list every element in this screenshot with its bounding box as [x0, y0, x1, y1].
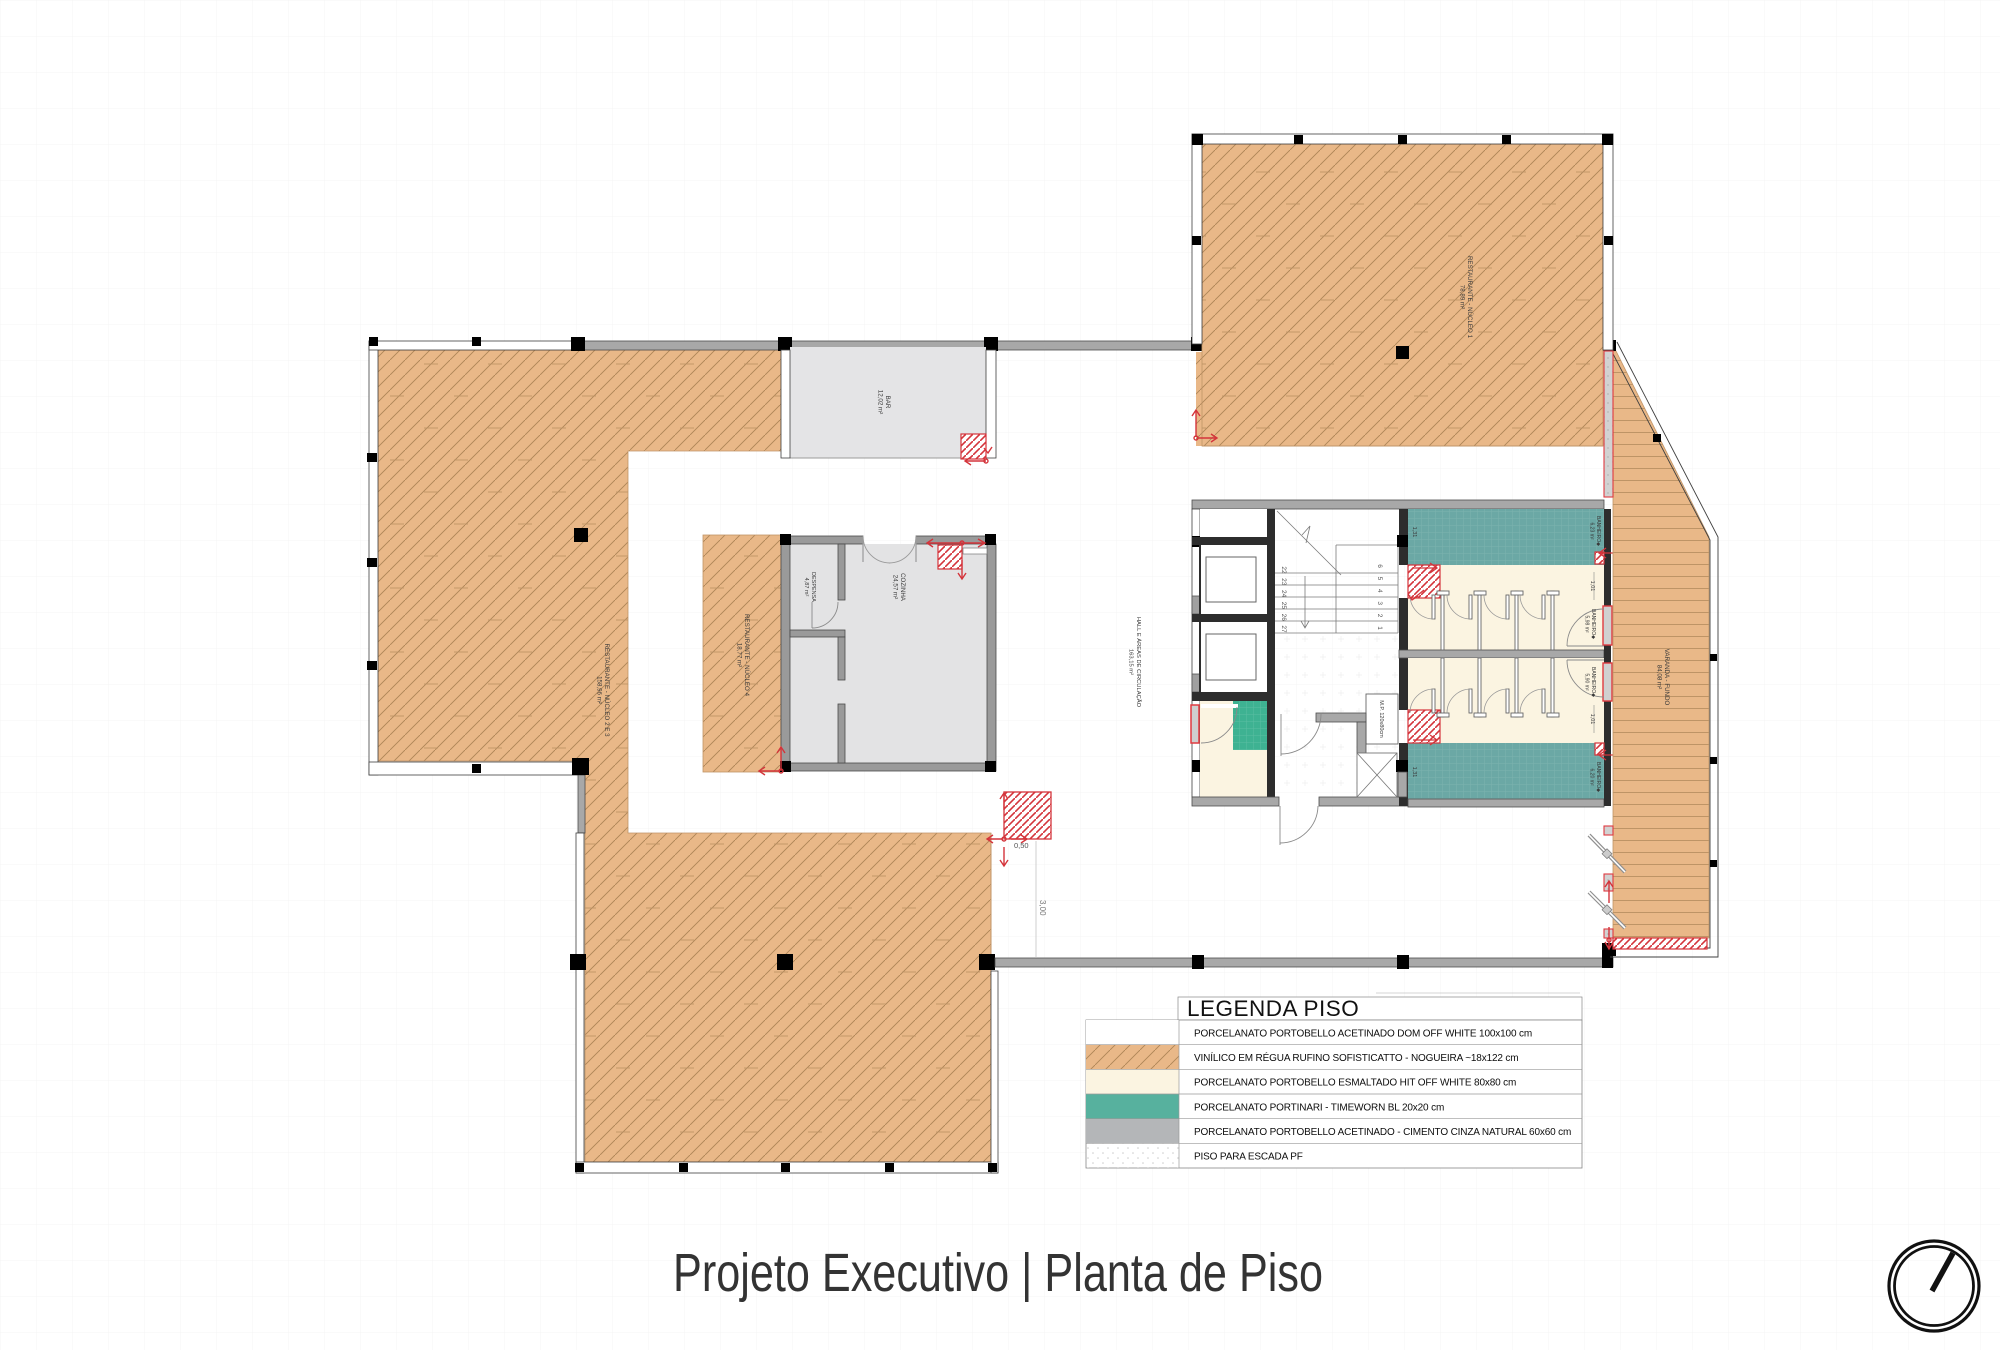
svg-text:BANHEIRO◆: BANHEIRO◆ [1590, 667, 1596, 697]
svg-text:5,90 m²: 5,90 m² [1584, 674, 1590, 691]
svg-text:BANHEIRO◆: BANHEIRO◆ [1595, 516, 1601, 546]
svg-text:COZINHA: COZINHA [899, 573, 906, 602]
svg-text:M.P. 120x80cm: M.P. 120x80cm [1378, 700, 1384, 738]
svg-text:BAR: BAR [884, 396, 891, 409]
svg-text:1: 1 [1376, 626, 1383, 630]
svg-text:1,31: 1,31 [1411, 767, 1417, 778]
svg-text:78,89 m²: 78,89 m² [1458, 285, 1465, 309]
svg-text:5: 5 [1376, 577, 1383, 581]
svg-text:PORCELANATO PORTINARI - TIMEWO: PORCELANATO PORTINARI - TIMEWORN BL 20x2… [1194, 1102, 1444, 1113]
svg-text:18,77 m²: 18,77 m² [735, 643, 742, 667]
svg-text:27: 27 [1280, 625, 1287, 633]
svg-text:PISO PARA ESCADA PF: PISO PARA ESCADA PF [1194, 1152, 1303, 1163]
svg-text:23: 23 [1280, 578, 1287, 586]
svg-text:3: 3 [1376, 601, 1383, 605]
svg-text:RESTAURANTE - NÚCLEO 2 E 3: RESTAURANTE - NÚCLEO 2 E 3 [603, 643, 610, 737]
svg-text:LEGENDA PISO: LEGENDA PISO [1187, 996, 1359, 1021]
svg-text:5,98 m²: 5,98 m² [1584, 616, 1590, 633]
svg-text:26: 26 [1280, 614, 1287, 622]
svg-text:4: 4 [1376, 589, 1383, 593]
svg-text:12,02 m²: 12,02 m² [876, 390, 883, 414]
svg-text:PORCELANATO PORTOBELLO ACETINA: PORCELANATO PORTOBELLO ACETINADO - CIMEN… [1194, 1127, 1571, 1138]
svg-text:24: 24 [1280, 590, 1287, 598]
svg-text:2: 2 [1376, 614, 1383, 618]
svg-text:BANHEIRO◆: BANHEIRO◆ [1590, 609, 1596, 639]
svg-text:1,31: 1,31 [1411, 527, 1417, 538]
svg-text:VINÍLICO EM RÉGUA RUFINO SOFIS: VINÍLICO EM RÉGUA RUFINO SOFISTICATTO - … [1194, 1051, 1518, 1064]
svg-text:24,57 m²: 24,57 m² [891, 575, 898, 599]
svg-text:163,15 m²: 163,15 m² [1128, 649, 1134, 675]
svg-text:84,08 m²: 84,08 m² [1655, 665, 1662, 689]
svg-text:RESTAURANTE - NÚCLEO 4: RESTAURANTE - NÚCLEO 4 [743, 614, 750, 697]
svg-text:Projeto Executivo | Planta de: Projeto Executivo | Planta de Piso [673, 1243, 1323, 1303]
svg-text:PORCELANATO PORTOBELLO ESMALTA: PORCELANATO PORTOBELLO ESMALTADO HIT OFF… [1194, 1078, 1516, 1089]
svg-text:25: 25 [1280, 602, 1287, 610]
svg-text:6,20 m²: 6,20 m² [1589, 769, 1595, 786]
svg-text:22: 22 [1280, 566, 1287, 574]
svg-text:0,50: 0,50 [1014, 841, 1029, 850]
svg-text:DESPENSA: DESPENSA [810, 572, 816, 602]
svg-text:HALL E ÁREAS DE CIRCULAÇÃO: HALL E ÁREAS DE CIRCULAÇÃO [1135, 617, 1142, 708]
svg-text:VARANDA - FUNDO: VARANDA - FUNDO [1663, 649, 1670, 706]
svg-text:3,00: 3,00 [1038, 900, 1047, 916]
svg-text:158,96 m²: 158,96 m² [595, 676, 602, 704]
svg-text:PORCELANATO PORTOBELLO ACETINA: PORCELANATO PORTOBELLO ACETINADO DOM OFF… [1194, 1028, 1532, 1039]
svg-text:RESTAURANTE - NÚCLEO 1: RESTAURANTE - NÚCLEO 1 [1466, 256, 1473, 339]
svg-text:BANHEIRO◆: BANHEIRO◆ [1595, 762, 1601, 792]
svg-text:6,23 m²: 6,23 m² [1589, 523, 1595, 540]
svg-text:4,87 m²: 4,87 m² [803, 578, 809, 597]
svg-text:6: 6 [1376, 564, 1383, 568]
